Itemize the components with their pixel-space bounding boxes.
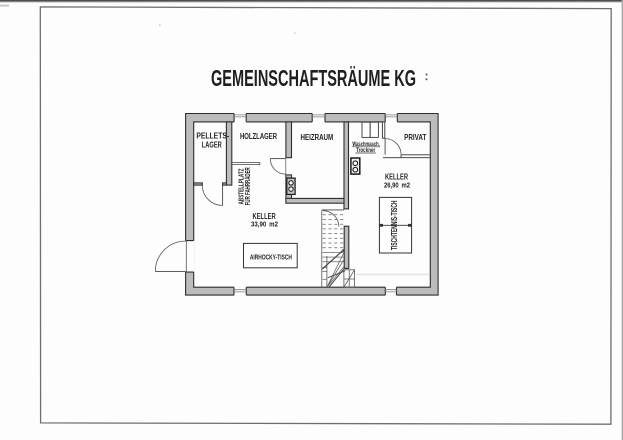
svg-text:FÜR FAHRRÄDER: FÜR FAHRRÄDER (243, 167, 252, 205)
svg-text:26,90 m2: 26,90 m2 (384, 181, 410, 190)
svg-text:AIRHOCKY-TISCH: AIRHOCKY-TISCH (250, 252, 292, 261)
svg-text:GEMEINSCHAFTSRÄUME KG: GEMEINSCHAFTSRÄUME KG (211, 65, 416, 91)
svg-text:HEIZRAUM: HEIZRAUM (301, 132, 334, 142)
svg-text:33,90 m2: 33,90 m2 (251, 220, 278, 229)
svg-text:PRIVAT: PRIVAT (404, 132, 427, 142)
svg-text:HOLZLAGER: HOLZLAGER (240, 131, 278, 141)
svg-text:TISCHTENNIS-TISCH: TISCHTENNIS-TISCH (390, 200, 399, 250)
svg-text:LAGER: LAGER (202, 139, 223, 149)
